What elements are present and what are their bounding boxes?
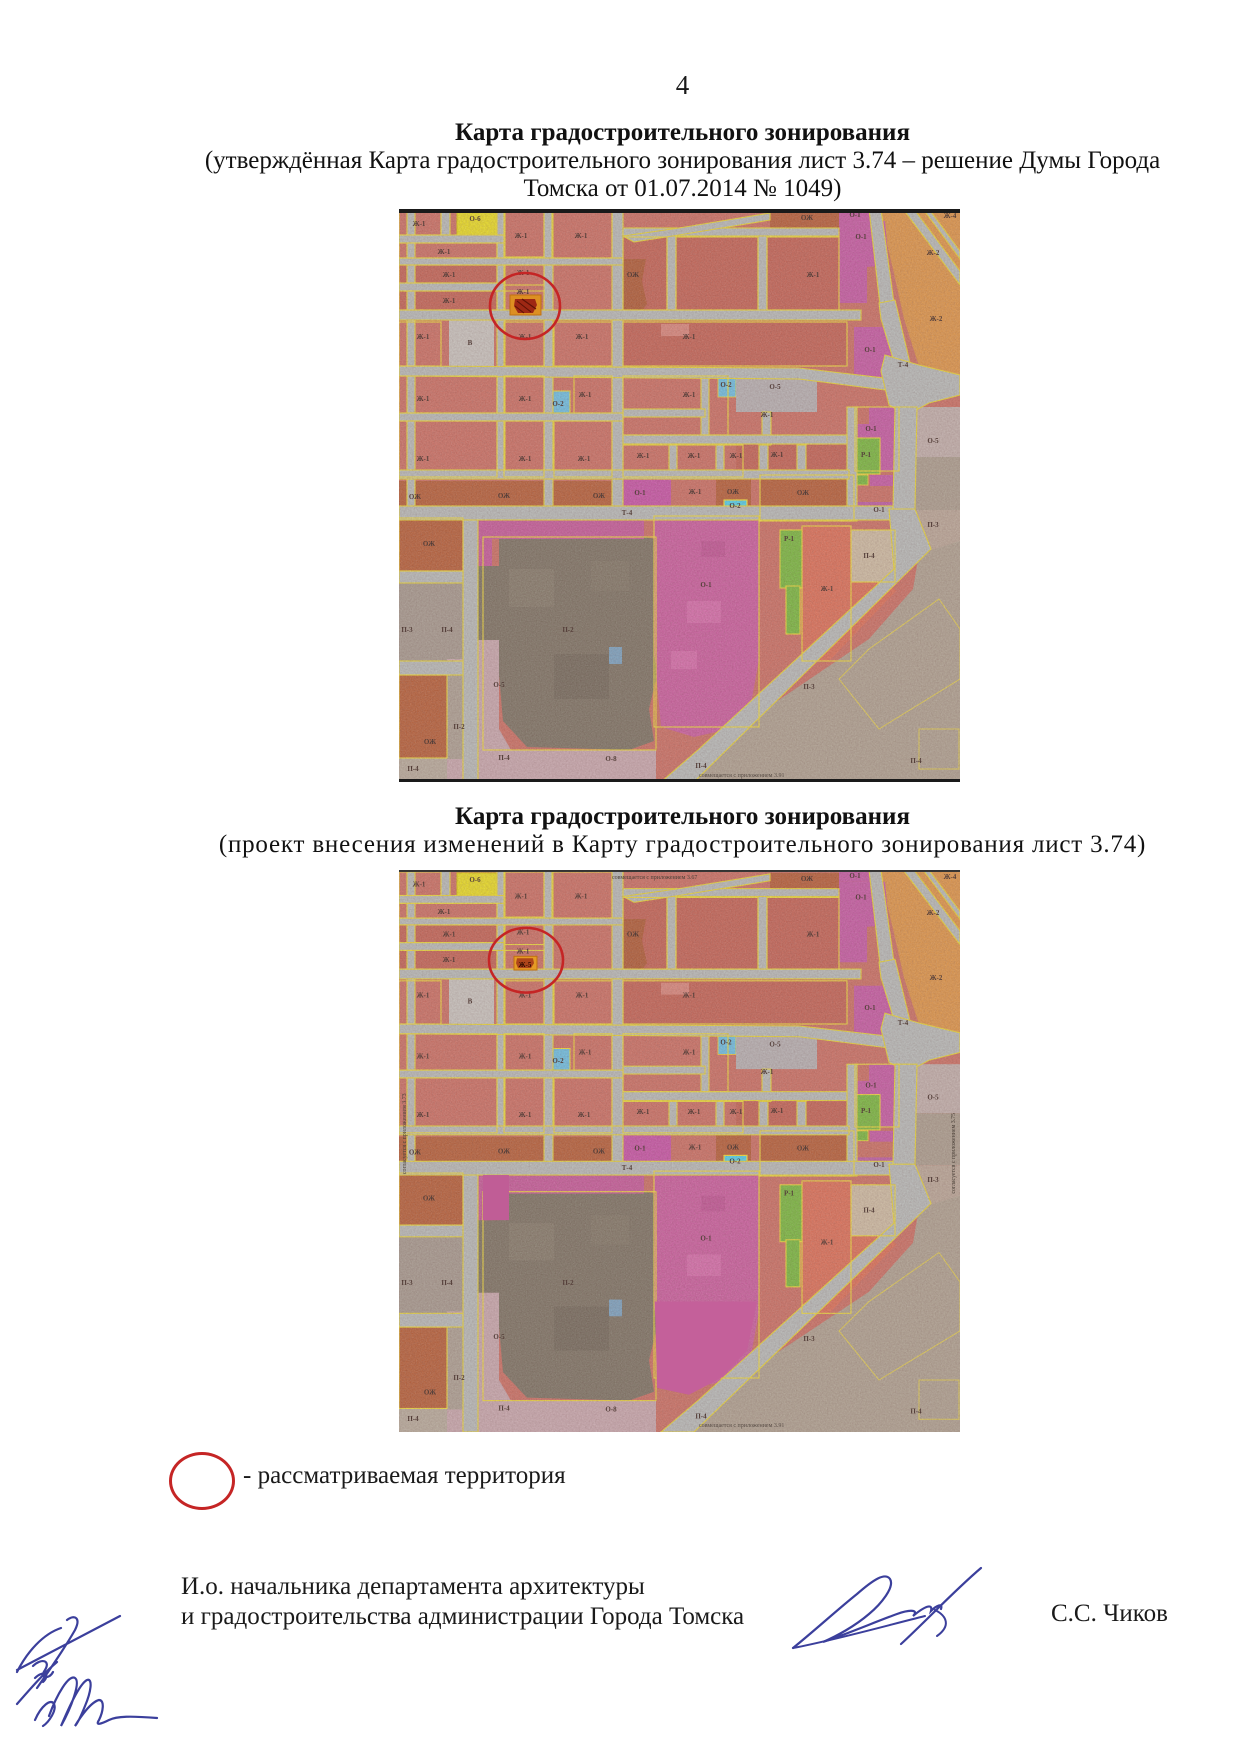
svg-text:совмещается с приложением 3.67: совмещается с приложением 3.67 (612, 875, 697, 881)
svg-text:согласуется с приложением 3.73: согласуется с приложением 3.73 (402, 1093, 408, 1174)
svg-text:Ж-5: Ж-5 (519, 962, 532, 969)
svg-text:согласуется с приложением 3.75: согласуется с приложением 3.75 (951, 1113, 957, 1194)
